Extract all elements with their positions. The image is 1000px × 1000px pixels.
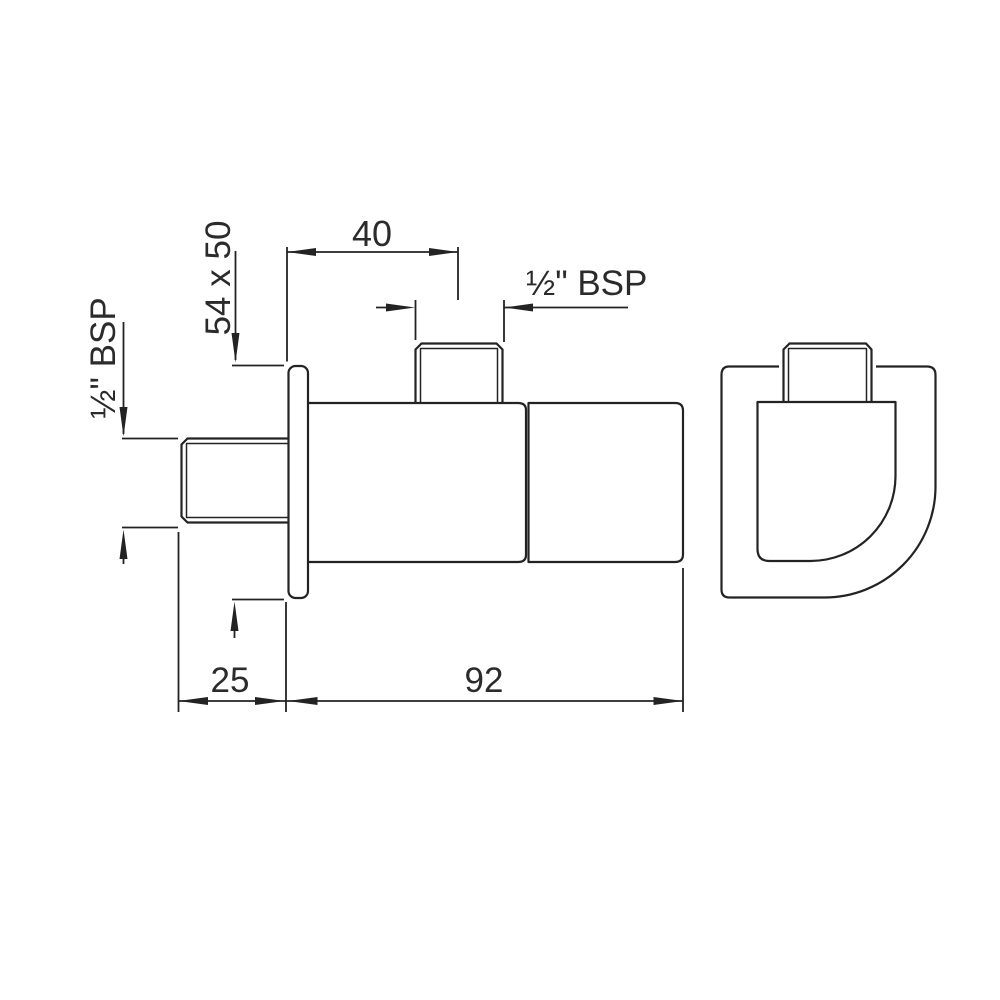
top-port-thread-line	[421, 349, 498, 403]
side-body-profile	[758, 402, 896, 561]
dim-92-label: 92	[465, 661, 504, 700]
dim-54x50-label: 54 x 50	[199, 221, 238, 336]
front-view	[182, 344, 684, 599]
arrowhead	[120, 530, 128, 560]
bsp-top-label: ½" BSP	[526, 264, 647, 303]
arrowhead	[504, 304, 533, 312]
arrowhead	[179, 697, 209, 705]
arrowhead	[231, 602, 239, 632]
arrowhead	[386, 304, 415, 312]
valve-body	[308, 403, 526, 562]
dim-25-label: 25	[211, 661, 250, 700]
flange-outline	[289, 366, 309, 598]
dim-top-bsp: ½" BSP	[376, 264, 647, 342]
arrowhead	[654, 697, 684, 705]
dim-left-bsp: ½" BSP	[84, 297, 178, 564]
port-overlap-mask	[779, 338, 876, 400]
dim-25-92: 25 92	[179, 532, 684, 712]
valve-handle	[529, 403, 684, 562]
dim-40: 40	[287, 213, 458, 362]
arrowhead	[255, 697, 285, 705]
inlet-port-outline	[182, 439, 289, 523]
arrowhead	[429, 248, 458, 256]
side-view	[722, 338, 936, 598]
top-port-outline	[416, 344, 503, 403]
arrowhead	[232, 333, 240, 363]
arrowhead	[288, 697, 318, 705]
dim-40-label: 40	[352, 213, 392, 254]
inlet-port-thread-line	[187, 444, 289, 518]
technical-drawing: 40 ½" BSP 54 x 50 ½" BSP	[0, 0, 1000, 1000]
arrowhead	[287, 248, 316, 256]
dim-54x50: 54 x 50	[199, 221, 284, 638]
bsp-left-label: ½" BSP	[84, 297, 123, 418]
